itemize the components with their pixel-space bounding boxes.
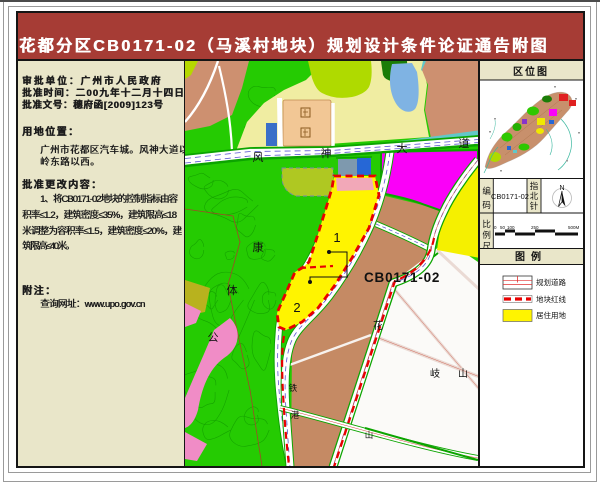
svg-text:山: 山 [458,368,468,380]
svg-text:1: 1 [333,230,340,245]
svg-text:500M: 500M [568,225,580,230]
svg-text:图例: 图例 [515,250,547,263]
svg-text:道: 道 [459,136,470,150]
svg-text:50: 50 [500,225,506,230]
svg-text:CB0171-02: CB0171-02 [491,192,529,201]
svg-text:规划道路: 规划道路 [536,277,566,287]
svg-text:CB0171-02: CB0171-02 [364,270,440,285]
svg-text:花: 花 [373,319,383,332]
svg-text:神: 神 [321,146,332,160]
svg-text:体: 体 [227,283,238,297]
svg-text:2: 2 [293,300,300,315]
svg-text:北: 北 [530,191,539,201]
svg-text:山: 山 [365,430,374,440]
svg-text:250: 250 [531,225,539,230]
svg-text:N: N [559,185,564,192]
svg-text:风: 风 [253,151,264,164]
svg-text:指: 指 [530,181,539,191]
svg-text:岐: 岐 [430,367,440,380]
svg-text:码: 码 [482,200,491,210]
svg-text:港: 港 [291,410,300,420]
svg-text:地块红线: 地块红线 [536,294,566,304]
svg-text:铁: 铁 [289,383,298,393]
svg-text:100: 100 [507,225,515,230]
svg-text:公: 公 [208,332,219,344]
svg-text:例: 例 [482,230,491,240]
svg-text:区位图: 区位图 [513,65,549,78]
svg-text:居住用地: 居住用地 [536,310,566,320]
svg-text:康: 康 [253,240,264,254]
svg-text:针: 针 [530,201,539,211]
svg-text:比: 比 [482,219,491,229]
svg-text:编: 编 [482,186,491,196]
svg-text:大: 大 [397,141,408,155]
